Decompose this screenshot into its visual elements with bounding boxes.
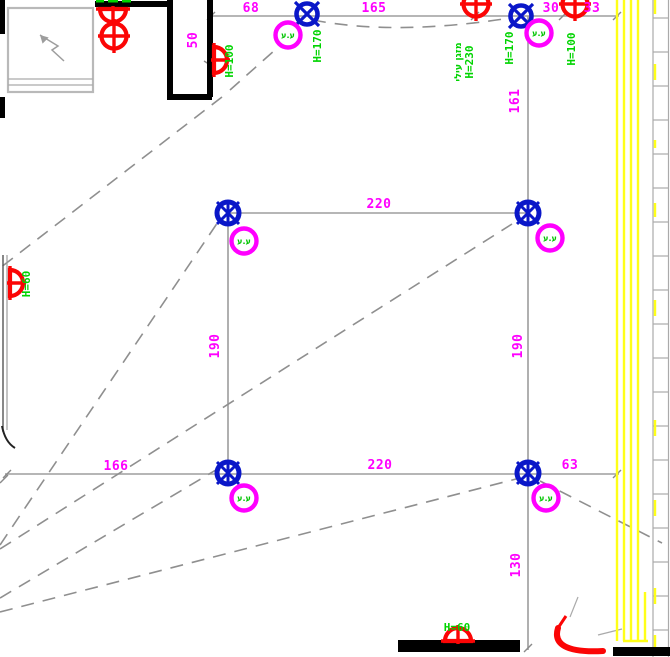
fixtures [7, 0, 591, 644]
height-label-h100-right: H=100 [565, 32, 578, 65]
dim-190-left: 190 [208, 334, 223, 359]
dim-130: 130 [509, 553, 524, 578]
dim-63: 63 [562, 458, 579, 473]
hatched-wall-right-edge [653, 0, 669, 657]
dim-square-top-220: 220 [367, 197, 392, 212]
clipped-label-fragment [96, 0, 131, 3]
dim-top-68: 68 [243, 1, 260, 16]
dim-190-right: 190 [511, 334, 526, 359]
dim-161: 161 [508, 89, 523, 114]
window-top-left [8, 8, 93, 92]
height-label-h170-left: H=170 [311, 29, 324, 62]
height-label-h60-left: H=60 [20, 271, 33, 298]
junction-circle-label: ע.ע [281, 31, 295, 40]
ceiling-point-icon [217, 460, 239, 486]
dim-top-30: 30 [543, 1, 560, 16]
dimension-labels: 68 165 30 33 50 161 220 190 190 166 220 … [104, 1, 601, 577]
ceiling-light-icon [460, 0, 492, 21]
height-labels: H=100 H=170 מזגן עילי H=230 H=170 H=100 … [20, 29, 578, 634]
walls [0, 0, 670, 656]
junction-box-icon [295, 2, 319, 26]
dim-top-33: 33 [584, 1, 601, 16]
wall-hatch-rungs [653, 18, 669, 630]
junction-circle-label: ע.ע [543, 234, 557, 243]
dim-top-165: 165 [362, 1, 387, 16]
ceiling-light-icon [98, 19, 130, 53]
dim-166: 166 [104, 459, 129, 474]
height-label-h60-bottom: H=60 [444, 621, 471, 634]
dimension-lines [0, 12, 621, 652]
height-label-h100-left: H=100 [223, 44, 236, 77]
red-conduit [557, 616, 603, 651]
cad-drawing-canvas[interactable]: ע.ע ע.ע ע.ע ע.ע ע.ע ע.ע 68 165 30 33 50 … [0, 0, 670, 657]
junction-circle-label: ע.ע [237, 494, 251, 503]
height-label-h170-right: H=170 [503, 31, 516, 64]
height-label-h230: H=230 [463, 45, 476, 78]
junction-circle-label: ע.ע [539, 494, 553, 503]
junction-circle-label: ע.ע [532, 29, 546, 38]
dim-square-bottom-220: 220 [368, 458, 393, 473]
dim-50: 50 [186, 32, 201, 49]
yellow-hatch-lines [617, 0, 648, 641]
junction-circle-label: ע.ע [237, 237, 251, 246]
electrical-plan-svg: ע.ע ע.ע ע.ע ע.ע ע.ע ע.ע 68 165 30 33 50 … [0, 0, 670, 657]
ceiling-point-icon [517, 460, 539, 486]
switch-leg-dashed-lines [0, 18, 662, 635]
